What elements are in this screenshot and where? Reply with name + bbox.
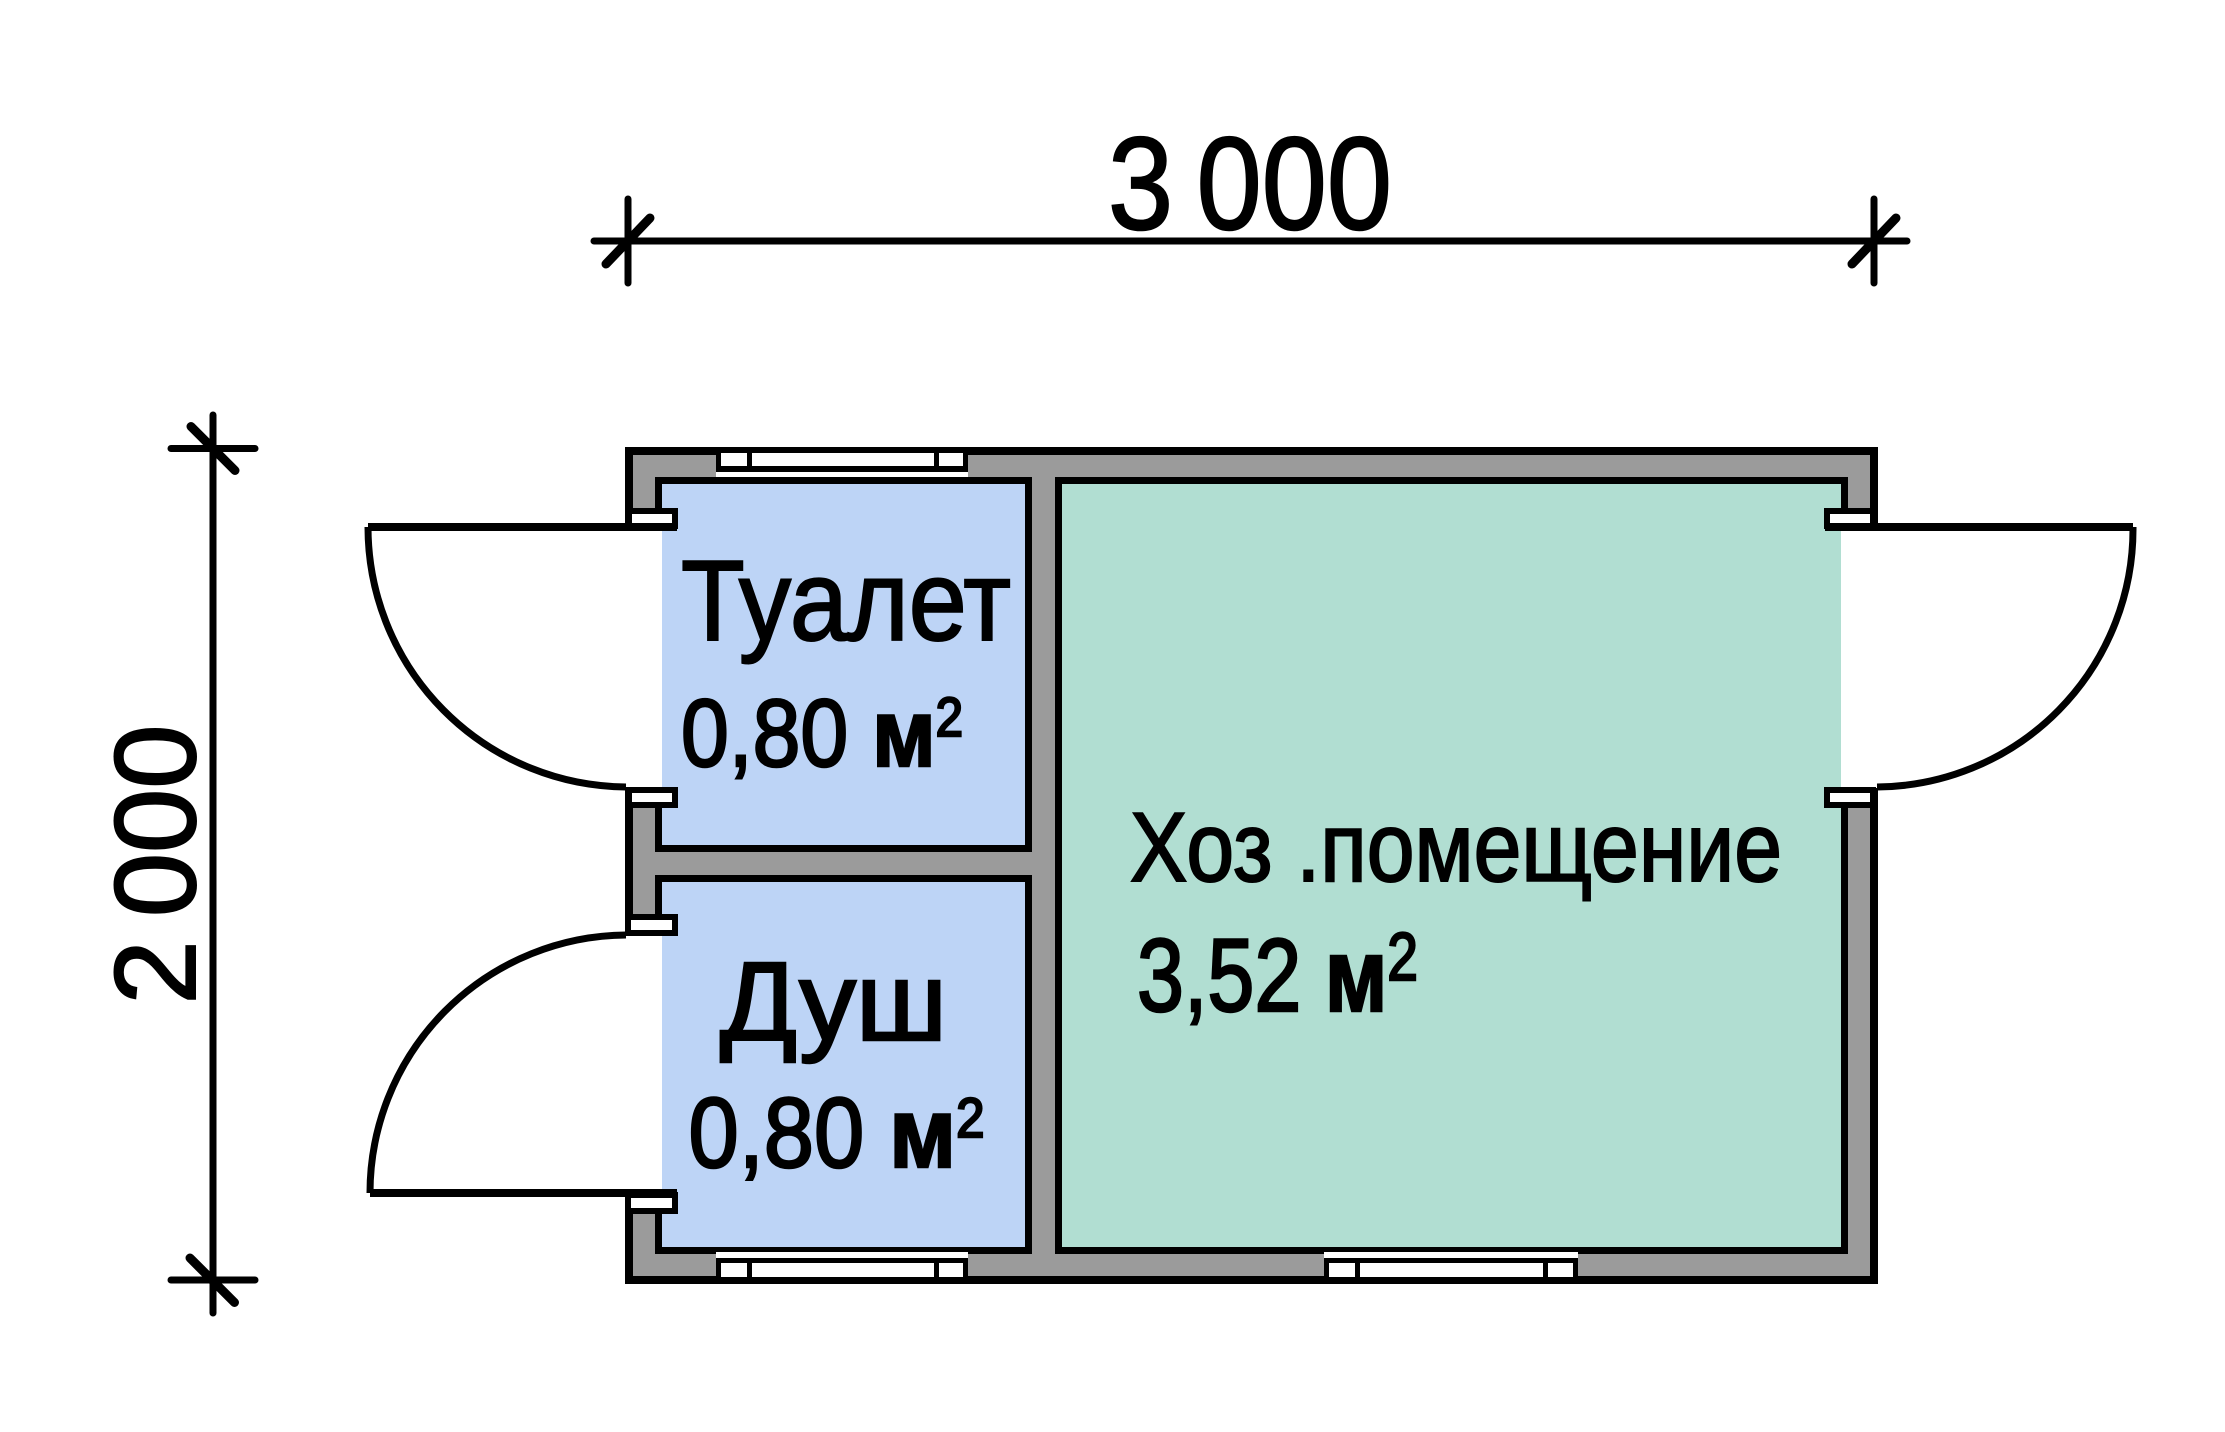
svg-text:2 000: 2 000 [92, 725, 220, 1005]
svg-text:0,80 м2: 0,80 м2 [681, 680, 963, 787]
svg-text:0,80 м2: 0,80 м2 [689, 1077, 985, 1188]
svg-text:Душ: Душ [720, 940, 947, 1064]
svg-text:Туалет: Туалет [681, 538, 1011, 665]
svg-text:Хоз .помещение: Хоз .помещение [1130, 792, 1782, 902]
svg-text:3,52 м2: 3,52 м2 [1137, 918, 1418, 1034]
svg-text:3 000: 3 000 [1108, 110, 1392, 257]
